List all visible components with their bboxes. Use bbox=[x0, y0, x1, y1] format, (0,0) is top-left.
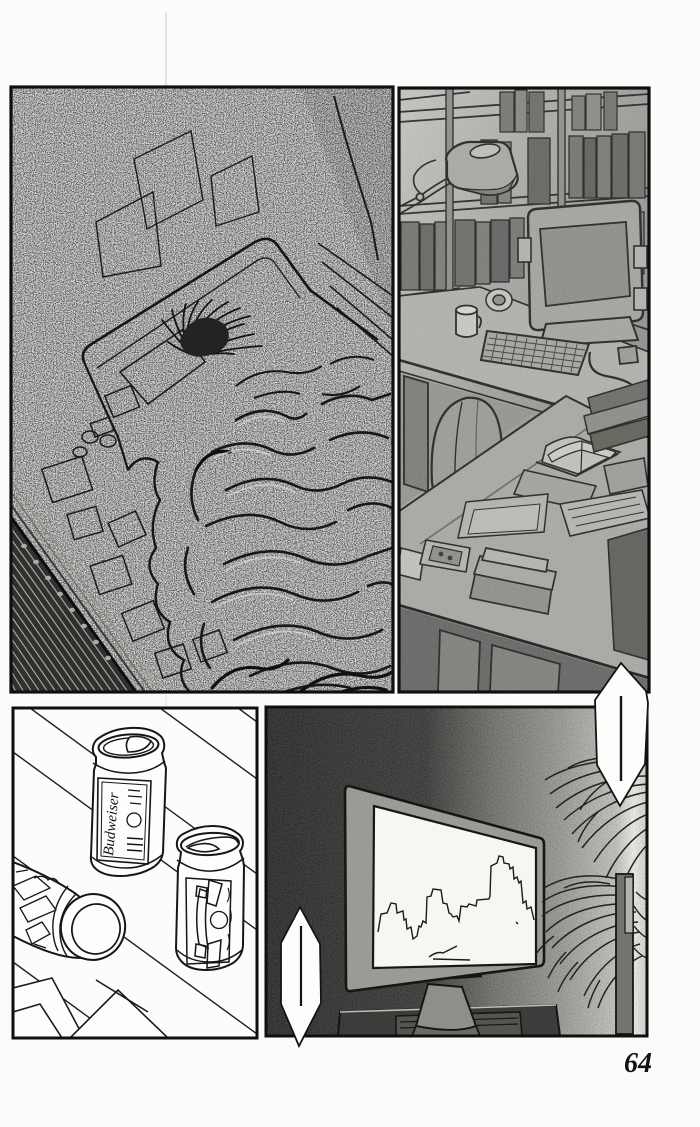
svg-text:64: 64 bbox=[624, 1048, 652, 1079]
